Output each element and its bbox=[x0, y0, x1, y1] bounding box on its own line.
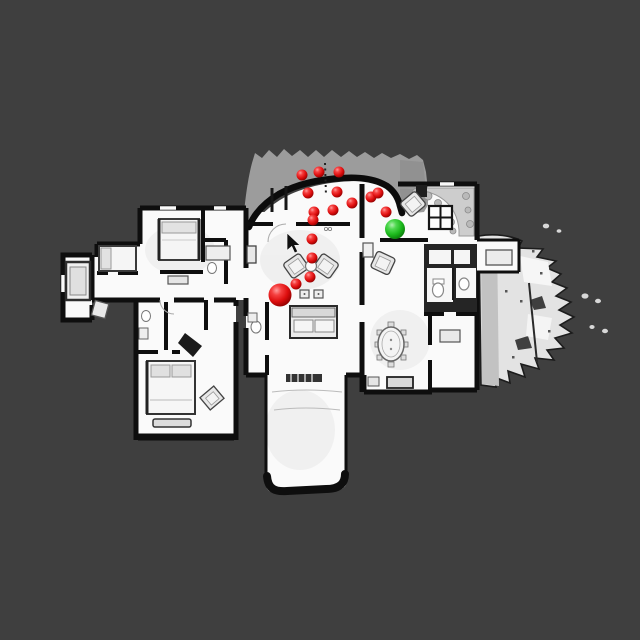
floorplan-canvas bbox=[0, 0, 640, 640]
waypoint-marker bbox=[291, 279, 302, 290]
bench bbox=[153, 419, 191, 427]
cabinet bbox=[363, 243, 373, 257]
waypoint-marker bbox=[307, 234, 318, 245]
table bbox=[440, 330, 460, 342]
console bbox=[247, 246, 256, 263]
waypoint-marker bbox=[381, 207, 392, 218]
single-bed bbox=[99, 246, 136, 271]
shower bbox=[206, 246, 230, 260]
waypoint-marker bbox=[297, 170, 308, 181]
bathroom-block bbox=[424, 244, 477, 312]
hall-chair bbox=[91, 300, 108, 318]
viewport bbox=[0, 0, 640, 640]
toilet bbox=[208, 263, 217, 274]
waypoint-marker bbox=[334, 167, 345, 178]
waypoint-marker bbox=[347, 198, 358, 209]
toilet bbox=[433, 283, 444, 297]
bench bbox=[387, 377, 413, 388]
waypoint-marker bbox=[307, 253, 318, 264]
start-marker bbox=[269, 284, 292, 307]
table bbox=[486, 250, 512, 265]
bed bbox=[147, 361, 195, 414]
waypoint-marker bbox=[332, 187, 343, 198]
cabinet bbox=[368, 377, 379, 386]
waypoint-marker bbox=[305, 272, 316, 283]
waypoint-marker bbox=[308, 215, 319, 226]
sink bbox=[248, 313, 257, 322]
sink bbox=[139, 328, 148, 339]
dresser bbox=[168, 276, 188, 284]
crib bbox=[66, 262, 90, 300]
toilet bbox=[142, 311, 151, 322]
waypoint-marker bbox=[314, 167, 325, 178]
goal-marker bbox=[385, 219, 405, 239]
sink bbox=[459, 278, 469, 290]
sofa bbox=[290, 306, 337, 338]
waypoint-marker bbox=[373, 188, 384, 199]
waypoint-marker bbox=[328, 205, 339, 216]
toilet bbox=[251, 321, 261, 333]
bed bbox=[159, 219, 199, 260]
waypoint-marker bbox=[303, 188, 314, 199]
